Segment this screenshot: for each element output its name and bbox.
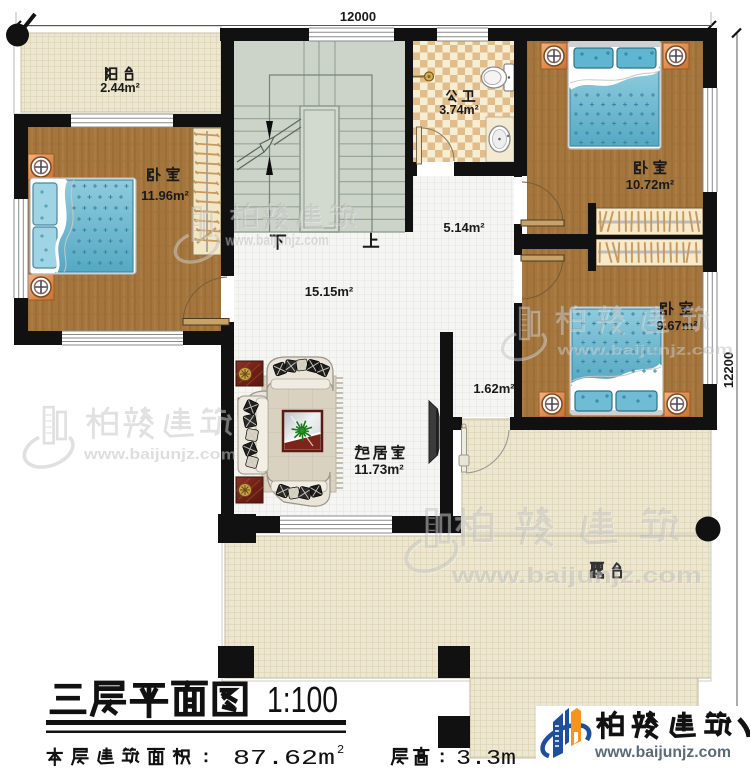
svg-text:www.baijunjz.com: www.baijunjz.com — [451, 563, 702, 588]
svg-text:www.baijunjz.com: www.baijunjz.com — [83, 446, 236, 463]
svg-text:1.62m²: 1.62m² — [473, 381, 515, 396]
svg-text:2: 2 — [337, 743, 344, 757]
svg-text:5.14m²: 5.14m² — [443, 220, 485, 235]
svg-text:11.73m²: 11.73m² — [354, 462, 404, 477]
svg-text:www.baijunjz.com: www.baijunjz.com — [224, 233, 329, 249]
svg-text:11.96m²: 11.96m² — [141, 188, 189, 203]
svg-text:2.44m²: 2.44m² — [100, 81, 140, 95]
svg-text:www.baijunjz.com: www.baijunjz.com — [556, 341, 733, 357]
svg-text:1:100: 1:100 — [267, 679, 338, 720]
svg-text:www.baijunjz.com: www.baijunjz.com — [594, 744, 731, 761]
svg-text:3.74m²: 3.74m² — [439, 103, 479, 117]
svg-text:87.62m: 87.62m — [233, 748, 335, 771]
svg-text:3.3m: 3.3m — [456, 748, 516, 771]
svg-text:15.15m²: 15.15m² — [305, 284, 354, 299]
svg-text:10.72m²: 10.72m² — [626, 177, 675, 192]
svg-text:12000: 12000 — [340, 9, 376, 24]
